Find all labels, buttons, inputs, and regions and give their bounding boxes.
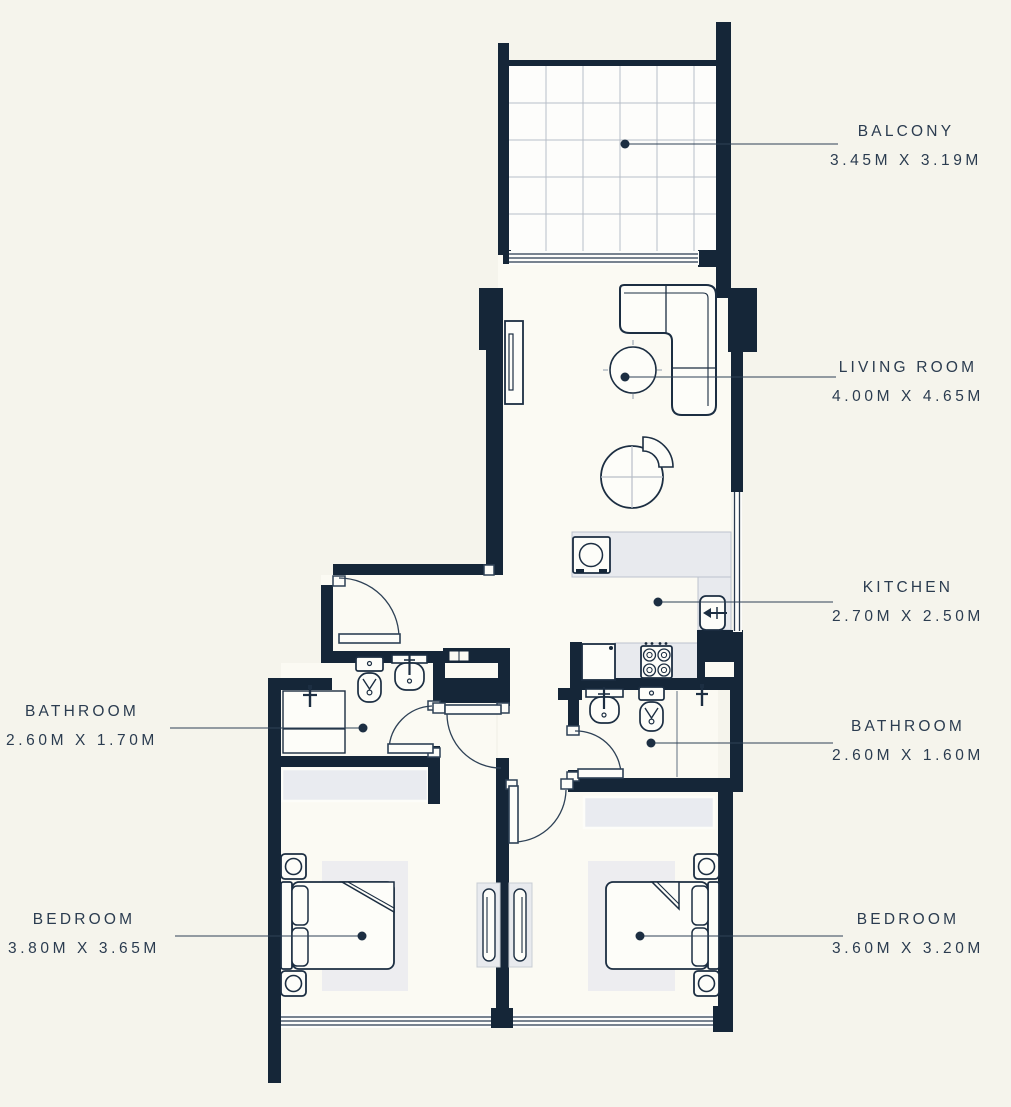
balcony-slider-window [509, 251, 699, 265]
washing-machine [573, 537, 610, 573]
toilet-left [356, 657, 383, 702]
room-dims: 2.60M X 1.60M [832, 748, 984, 764]
wardrobe-right [509, 883, 532, 967]
entry-left-wall [321, 585, 333, 655]
wardrobe-left [477, 883, 500, 967]
fridge [582, 644, 615, 680]
hall-wall-block [433, 678, 510, 703]
label-bedroom-right: BEDROOM 3.60M X 3.20M [832, 912, 984, 956]
room-dims: 3.45M X 3.19M [830, 153, 982, 169]
room-name: BEDROOM [857, 912, 960, 928]
pillow [292, 886, 308, 925]
label-bathroom-right: BATHROOM 2.60M X 1.60M [832, 719, 984, 763]
bed-right [606, 882, 719, 969]
nightstand [281, 971, 306, 996]
room-dims: 3.80M X 3.65M [8, 941, 160, 957]
sink-left [392, 653, 427, 690]
living-right-wall [731, 288, 743, 492]
right-bedroom-window [513, 1014, 713, 1028]
left-bedroom-window [281, 1014, 491, 1028]
balcony-top-wall [509, 60, 717, 66]
living-right-window [733, 492, 742, 632]
left-bathroom-bottom-wall [270, 756, 440, 767]
room-name: BEDROOM [33, 912, 136, 928]
right-corner-chunk [697, 630, 743, 690]
right-bedroom-dresser [584, 797, 714, 828]
room-dims: 3.60M X 3.20M [832, 941, 984, 957]
kitchen-sink [700, 596, 727, 630]
label-living-room: LIVING ROOM 4.00M X 4.65M [832, 360, 984, 404]
tv-unit [505, 321, 523, 404]
pillow [692, 928, 708, 966]
room-name: BATHROOM [25, 704, 139, 720]
label-kitchen: KITCHEN 2.70M X 2.50M [832, 580, 984, 624]
left-outer-wall [268, 678, 281, 1083]
label-bathroom-left: BATHROOM 2.60M X 1.70M [6, 704, 158, 748]
room-name: LIVING ROOM [839, 360, 978, 376]
headboard [281, 882, 292, 969]
pillow [292, 928, 308, 966]
nightstand [694, 854, 719, 879]
room-dims: 2.70M X 2.50M [832, 609, 984, 625]
label-bedroom-left: BEDROOM 3.80M X 3.65M [8, 912, 160, 956]
room-dims: 2.60M X 1.70M [6, 733, 158, 749]
living-left-wall [486, 302, 503, 575]
shower-left [283, 685, 345, 753]
nightstand [281, 854, 306, 879]
room-name: BALCONY [858, 124, 954, 140]
bed-left [281, 882, 394, 969]
entry-wall [333, 564, 493, 575]
headboard [708, 882, 719, 969]
nightstand [694, 971, 719, 996]
room-name: KITCHEN [863, 580, 953, 596]
left-bedroom-closet [282, 769, 428, 801]
sink-right [586, 687, 623, 723]
stove [641, 642, 672, 678]
balcony-floor [509, 66, 716, 251]
room-dims: 4.00M X 4.65M [832, 389, 984, 405]
room-name: BATHROOM [851, 719, 965, 735]
label-balcony: BALCONY 3.45M X 3.19M [830, 124, 982, 168]
right-bathroom-bottom-wall [577, 778, 743, 792]
right-bathroom-right-wall [730, 688, 743, 792]
pillow [692, 886, 708, 925]
right-bedroom-right-wall [718, 792, 733, 1014]
duct-notch [705, 662, 734, 677]
toilet-right [639, 687, 664, 731]
balcony-slider-block [698, 250, 717, 267]
balcony-right-wall [716, 22, 731, 298]
balcony-left-wall [498, 43, 509, 255]
floor-plan-page: BALCONY 3.45M X 3.19M LIVING ROOM 4.00M … [0, 0, 1011, 1107]
center-window-block [491, 1008, 513, 1028]
